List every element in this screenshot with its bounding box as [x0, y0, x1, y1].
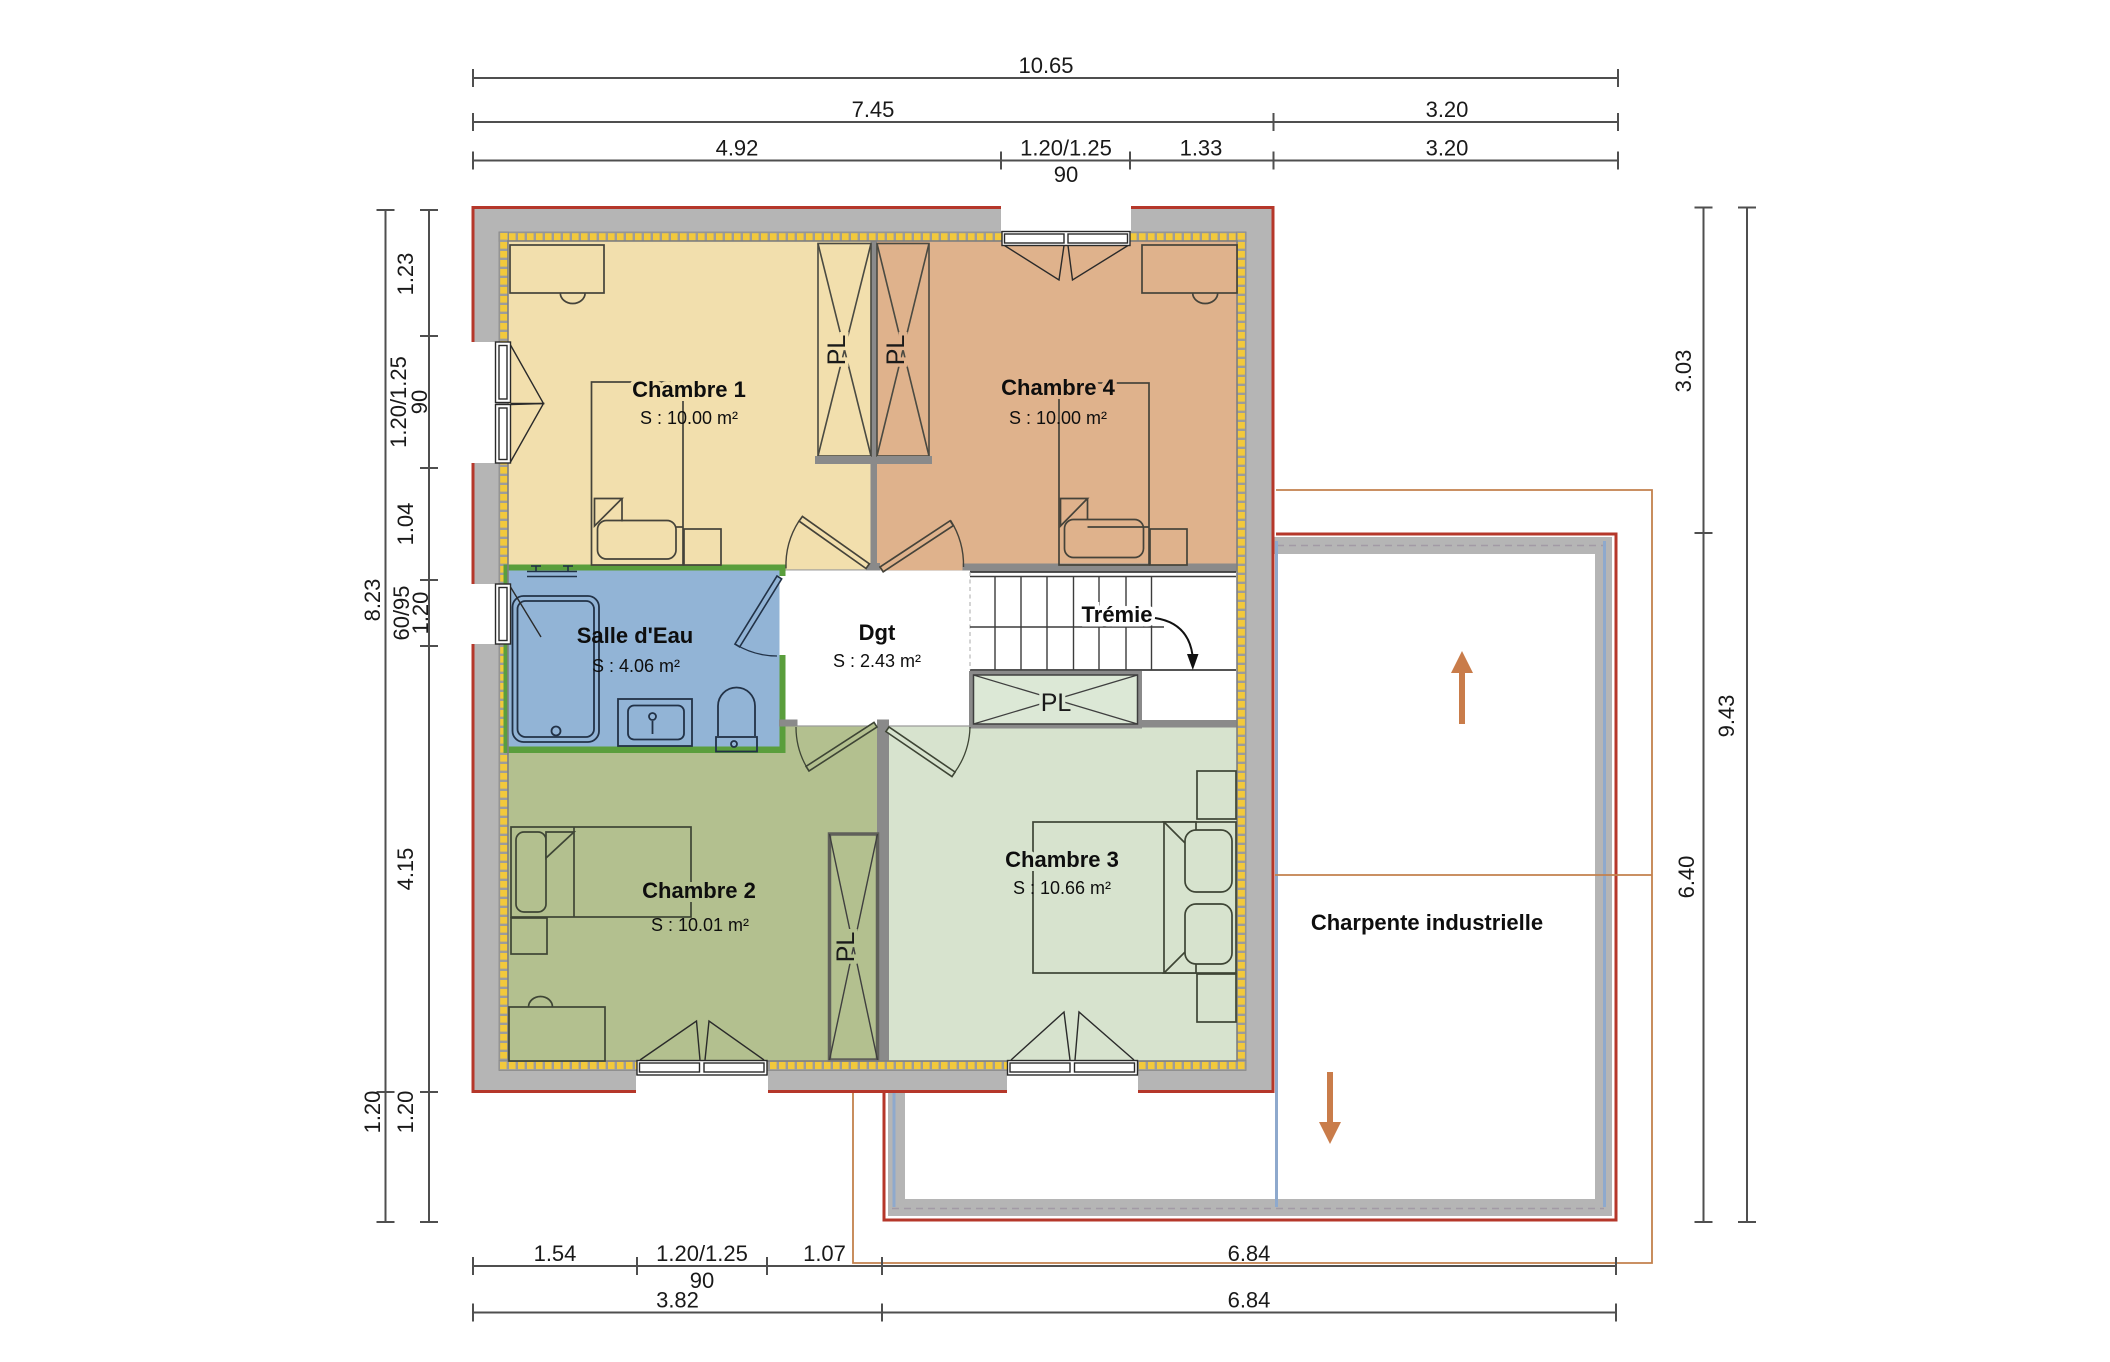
svg-text:S : 2.43 m²: S : 2.43 m² [833, 651, 921, 671]
svg-text:1.20/1.25: 1.20/1.25 [656, 1241, 748, 1266]
svg-text:1.20: 1.20 [393, 1091, 418, 1134]
svg-text:6.84: 6.84 [1228, 1241, 1271, 1266]
svg-text:9.43: 9.43 [1714, 695, 1739, 738]
svg-text:PL: PL [823, 335, 851, 366]
svg-text:PL: PL [832, 932, 860, 963]
svg-text:1.07: 1.07 [803, 1241, 846, 1266]
svg-text:Chambre 3: Chambre 3 [1005, 847, 1119, 872]
svg-text:1.23: 1.23 [393, 253, 418, 296]
svg-text:Trémie: Trémie [1082, 602, 1153, 627]
svg-text:1.54: 1.54 [534, 1241, 577, 1266]
svg-text:1.33: 1.33 [1180, 136, 1223, 161]
svg-text:1.04: 1.04 [393, 503, 418, 546]
svg-text:90: 90 [1054, 162, 1078, 187]
svg-text:Charpente industrielle: Charpente industrielle [1311, 910, 1543, 935]
svg-text:6.40: 6.40 [1674, 856, 1699, 899]
svg-text:Chambre 1: Chambre 1 [632, 377, 746, 402]
svg-text:Dgt: Dgt [859, 620, 896, 645]
svg-text:PL: PL [1041, 689, 1072, 717]
svg-text:90: 90 [407, 390, 432, 414]
svg-text:7.45: 7.45 [852, 97, 895, 122]
svg-text:3.82: 3.82 [656, 1288, 699, 1313]
svg-text:S : 10.00 m²: S : 10.00 m² [1009, 408, 1107, 428]
svg-text:S : 10.01 m²: S : 10.01 m² [651, 915, 749, 935]
svg-text:Salle d'Eau: Salle d'Eau [577, 623, 694, 648]
svg-text:6.84: 6.84 [1228, 1288, 1271, 1313]
svg-text:4.15: 4.15 [393, 848, 418, 891]
svg-text:S : 4.06 m²: S : 4.06 m² [592, 656, 680, 676]
svg-text:10.65: 10.65 [1018, 53, 1073, 78]
svg-text:1.20/1.25: 1.20/1.25 [1020, 136, 1112, 161]
svg-text:3.20: 3.20 [1426, 136, 1469, 161]
svg-text:1.20: 1.20 [360, 1091, 385, 1134]
svg-text:3.20: 3.20 [1426, 97, 1469, 122]
svg-text:Chambre 4: Chambre 4 [1001, 375, 1115, 400]
svg-text:8.23: 8.23 [360, 579, 385, 622]
svg-text:3.03: 3.03 [1671, 350, 1696, 393]
svg-text:1.20: 1.20 [408, 592, 433, 635]
svg-text:Chambre 2: Chambre 2 [642, 878, 756, 903]
svg-text:4.92: 4.92 [716, 136, 759, 161]
svg-text:PL: PL [882, 335, 910, 366]
svg-text:S : 10.66 m²: S : 10.66 m² [1013, 878, 1111, 898]
svg-text:S : 10.00 m²: S : 10.00 m² [640, 408, 738, 428]
